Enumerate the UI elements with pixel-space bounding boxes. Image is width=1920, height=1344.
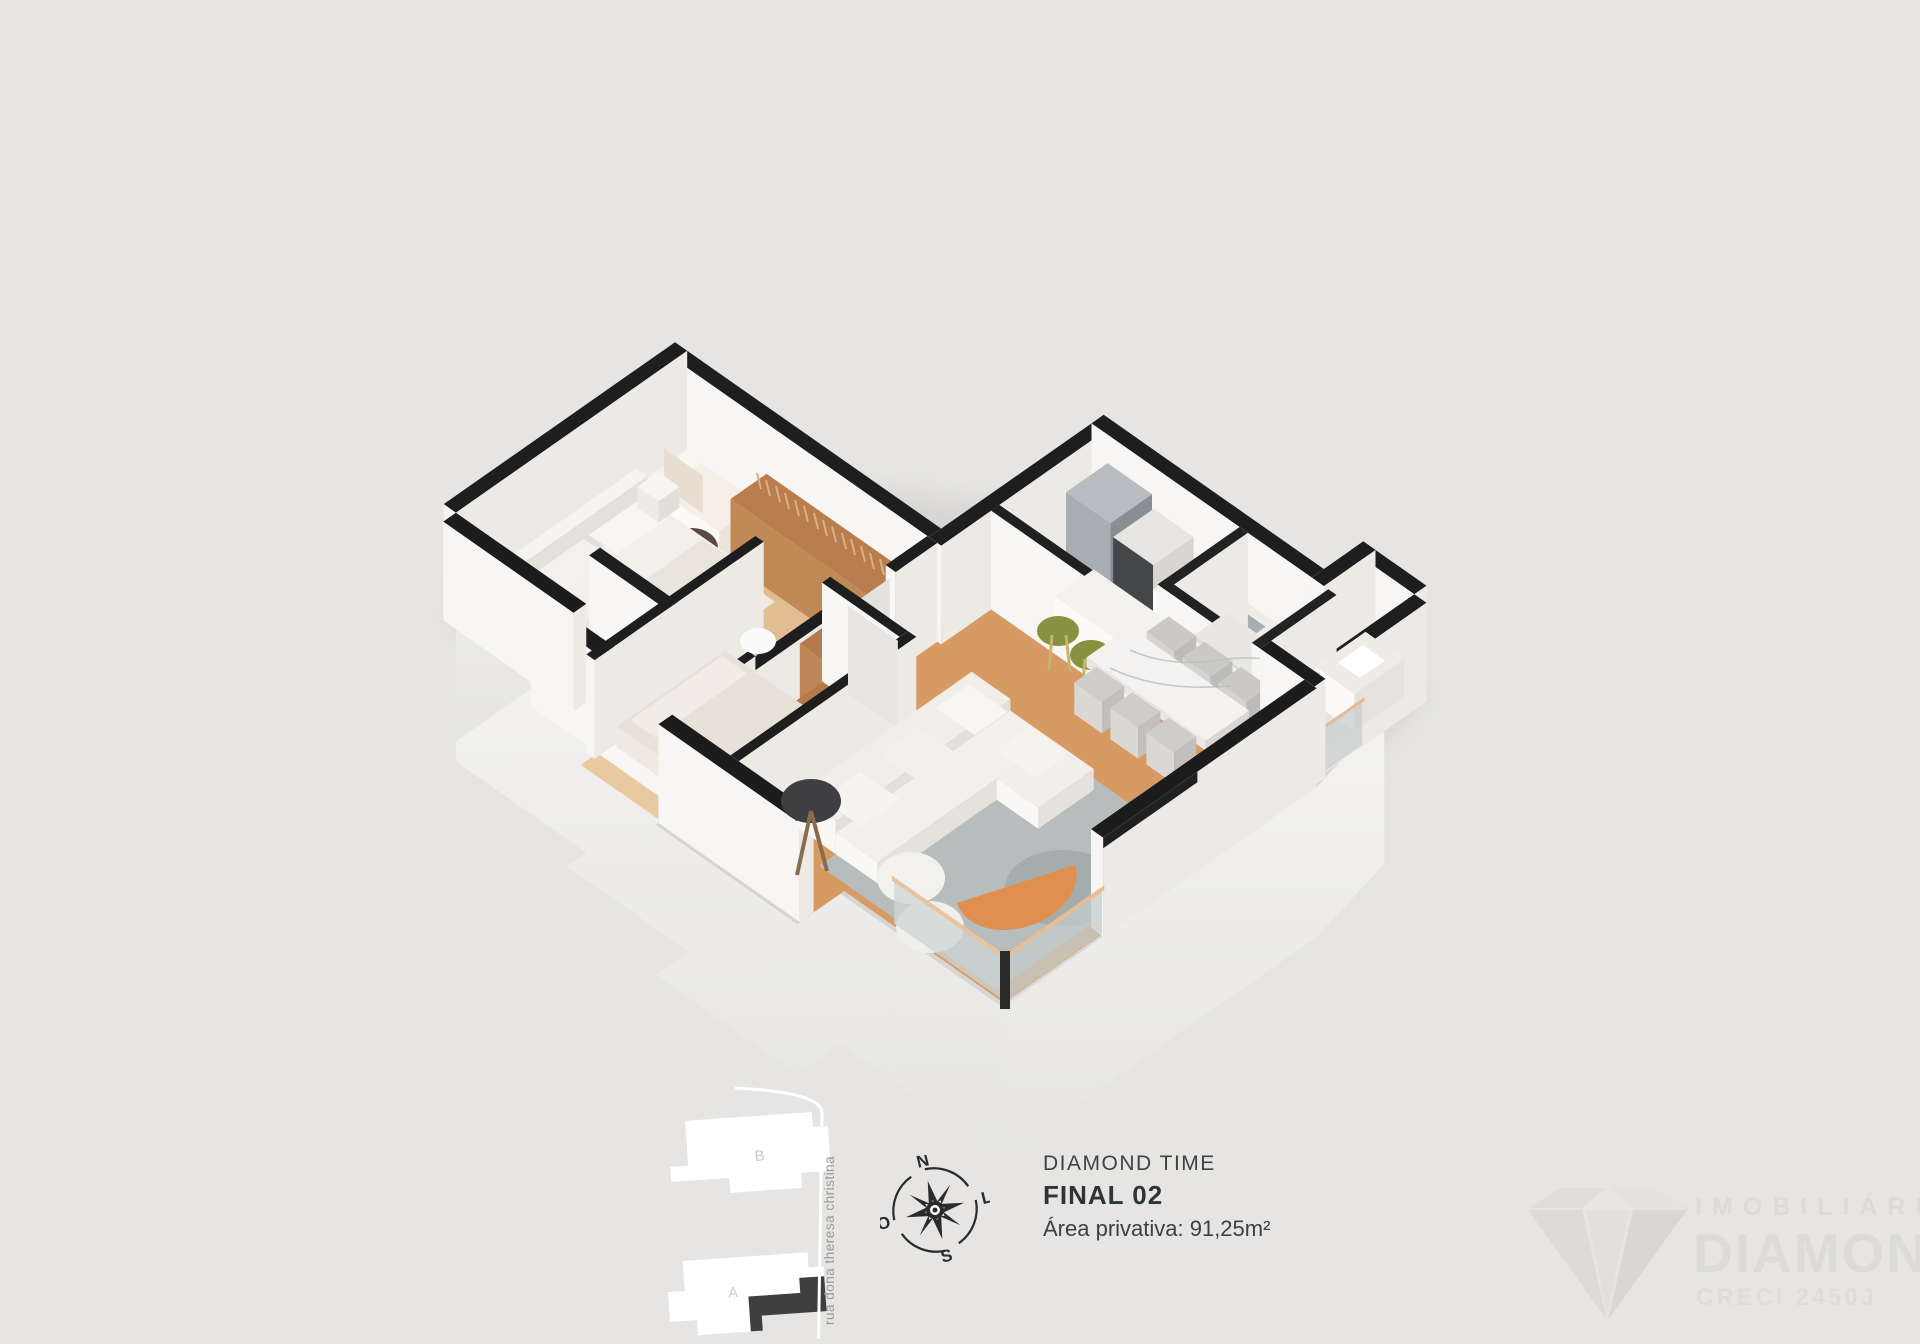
svg-text:A: A [728, 1284, 739, 1302]
svg-text:B: B [754, 1147, 765, 1165]
svg-text:N: N [915, 1155, 932, 1172]
svg-text:IMOBILIÁRIA: IMOBILIÁRIA [1695, 1192, 1920, 1221]
svg-text:S: S [939, 1245, 955, 1265]
svg-text:DIAMOND: DIAMOND [1693, 1222, 1920, 1284]
svg-text:O: O [880, 1212, 892, 1234]
svg-text:L: L [979, 1187, 990, 1208]
svg-text:CRECI 2450J: CRECI 2450J [1696, 1284, 1877, 1311]
